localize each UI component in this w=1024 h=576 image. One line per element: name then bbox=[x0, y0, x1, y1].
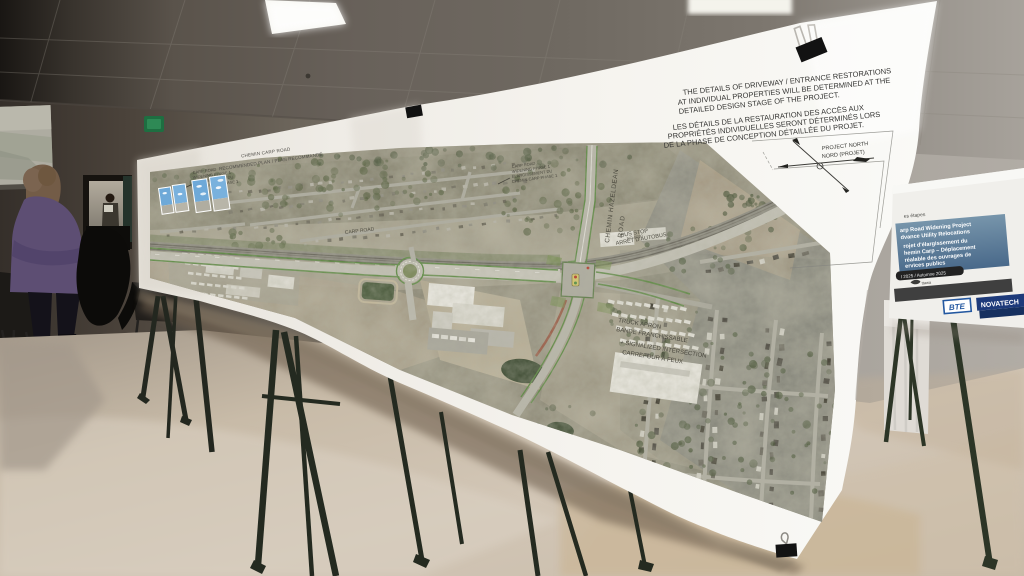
svg-text:BTE: BTE bbox=[948, 302, 965, 312]
svg-text:ttawa: ttawa bbox=[921, 280, 932, 286]
